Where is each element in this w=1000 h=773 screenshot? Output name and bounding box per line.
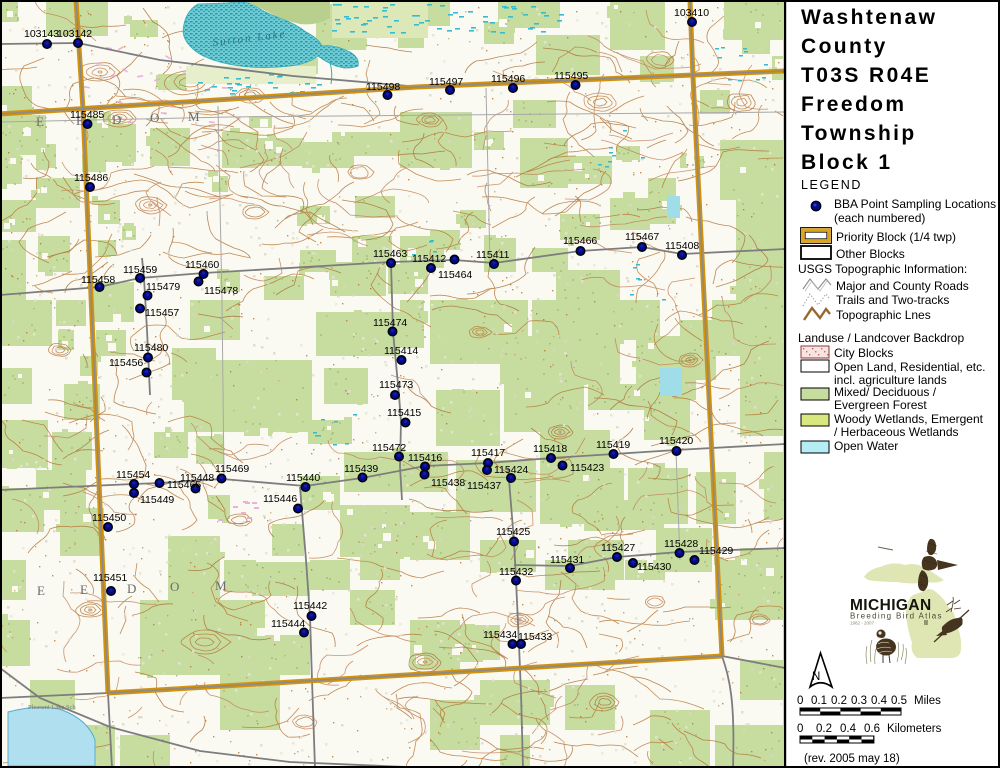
svg-text:115465: 115465 [167, 479, 201, 491]
svg-text:115456: 115456 [109, 357, 143, 369]
svg-text:115466: 115466 [563, 235, 597, 247]
svg-text:115419: 115419 [596, 439, 630, 451]
svg-text:103142: 103142 [57, 28, 92, 40]
svg-text:115423: 115423 [570, 462, 604, 474]
svg-text:BBA Point Sampling Locations: BBA Point Sampling Locations [834, 197, 996, 211]
svg-text:Block 1: Block 1 [801, 151, 893, 174]
svg-text:115498: 115498 [366, 81, 400, 93]
svg-text:County: County [801, 35, 888, 58]
svg-text:Township: Township [801, 122, 917, 145]
svg-text:115425: 115425 [496, 526, 530, 538]
svg-text:115414: 115414 [384, 345, 418, 357]
svg-text:115433: 115433 [518, 631, 552, 643]
svg-text:Freedom: Freedom [801, 93, 907, 116]
svg-text:115411: 115411 [476, 249, 510, 261]
svg-text:115479: 115479 [146, 281, 180, 293]
svg-text:115473: 115473 [379, 379, 413, 391]
svg-text:Kilometers: Kilometers [887, 723, 942, 735]
svg-text:115424: 115424 [494, 464, 528, 476]
svg-text:115432: 115432 [499, 566, 533, 578]
svg-text:115437: 115437 [467, 480, 501, 492]
svg-text:D: D [112, 112, 121, 127]
svg-text:Major and County Roads: Major and County Roads [836, 279, 969, 293]
svg-text:Breeding Bird Atlas: Breeding Bird Atlas [850, 612, 943, 621]
svg-text:115438: 115438 [431, 477, 465, 489]
svg-text:103410: 103410 [674, 7, 709, 19]
svg-text:115420: 115420 [659, 435, 693, 447]
svg-text:115434: 115434 [483, 629, 517, 641]
svg-text:M: M [215, 578, 227, 593]
svg-text:O: O [150, 110, 159, 125]
svg-text:115451: 115451 [93, 572, 127, 584]
svg-text:N: N [812, 671, 820, 683]
svg-text:115454: 115454 [116, 469, 150, 481]
svg-text:Landuse / Landcover Backdrop: Landuse / Landcover Backdrop [798, 331, 964, 345]
svg-text:115472: 115472 [372, 442, 406, 454]
svg-text:115486: 115486 [74, 172, 108, 184]
svg-text:115460: 115460 [185, 259, 219, 271]
svg-text:115428: 115428 [664, 538, 698, 550]
svg-text:0.4: 0.4 [840, 723, 857, 735]
svg-text:115444: 115444 [271, 618, 305, 630]
svg-text:115463: 115463 [373, 248, 407, 260]
svg-text:0.6: 0.6 [864, 723, 880, 735]
svg-text:115450: 115450 [92, 512, 126, 524]
svg-text:0.3: 0.3 [851, 695, 867, 707]
svg-text:USGS Topographic Information:: USGS Topographic Information: [798, 262, 967, 276]
svg-text:0: 0 [797, 723, 803, 735]
svg-text:115464: 115464 [438, 269, 472, 281]
svg-text:115431: 115431 [550, 554, 584, 566]
svg-text:115480: 115480 [134, 342, 168, 354]
svg-text:E: E [36, 114, 44, 129]
svg-text:115449: 115449 [140, 494, 174, 506]
svg-text:Open Water: Open Water [834, 439, 898, 453]
svg-text:115497: 115497 [429, 76, 463, 88]
svg-text:115446: 115446 [263, 493, 297, 505]
svg-text:E: E [37, 583, 45, 598]
svg-text:0.1: 0.1 [811, 695, 827, 707]
svg-text:115439: 115439 [344, 463, 378, 475]
svg-text:115430: 115430 [637, 561, 671, 573]
svg-text:115429: 115429 [699, 545, 733, 557]
svg-text:115427: 115427 [601, 542, 635, 554]
svg-text:0.2: 0.2 [831, 695, 847, 707]
svg-text:115416: 115416 [408, 452, 442, 464]
svg-text:0.2: 0.2 [816, 723, 832, 735]
svg-text:115459: 115459 [123, 264, 157, 276]
svg-text:0: 0 [797, 695, 803, 707]
svg-text:Evergreen Forest: Evergreen Forest [834, 398, 927, 412]
svg-text:115418: 115418 [533, 443, 567, 455]
svg-text:115457: 115457 [145, 307, 179, 319]
svg-text:115440: 115440 [286, 472, 320, 484]
svg-text:115469: 115469 [215, 463, 249, 475]
svg-text:T03S R04E: T03S R04E [801, 64, 931, 87]
svg-text:Mixed/ Deciduous /: Mixed/ Deciduous / [834, 385, 937, 399]
svg-text:115467: 115467 [625, 231, 659, 243]
svg-text:Open Land, Residential, etc.: Open Land, Residential, etc. [834, 360, 985, 374]
svg-text:115474: 115474 [373, 317, 407, 329]
svg-text:103143: 103143 [24, 28, 59, 40]
svg-text:E: E [80, 582, 88, 597]
svg-text:Woody Wetlands, Emergent: Woody Wetlands, Emergent [834, 412, 984, 426]
svg-text:II: II [924, 620, 928, 627]
svg-text:1982 - 2007: 1982 - 2007 [850, 621, 875, 626]
svg-text:115485: 115485 [70, 109, 104, 121]
svg-text:Pleasant Lake Sch: Pleasant Lake Sch [28, 704, 76, 711]
svg-text:City Blocks: City Blocks [834, 346, 893, 360]
svg-text:Miles: Miles [914, 695, 941, 707]
svg-text:LEGEND: LEGEND [801, 178, 862, 192]
svg-text:D: D [127, 581, 136, 596]
svg-text:115496: 115496 [491, 73, 525, 85]
svg-text:Priority Block (1/4 twp): Priority Block (1/4 twp) [836, 230, 956, 244]
svg-text:115495: 115495 [554, 70, 588, 82]
svg-text:115415: 115415 [387, 407, 421, 419]
svg-text:0.4: 0.4 [871, 695, 888, 707]
svg-text:Other Blocks: Other Blocks [836, 247, 905, 261]
svg-text:115442: 115442 [293, 600, 327, 612]
svg-text:Topographic Lnes: Topographic Lnes [836, 308, 931, 322]
svg-text:Trails and Two-tracks: Trails and Two-tracks [836, 293, 949, 307]
svg-text:115478: 115478 [204, 285, 238, 297]
svg-text:M: M [188, 109, 200, 124]
svg-text:115408: 115408 [665, 240, 699, 252]
svg-text:(each numbered): (each numbered) [834, 211, 925, 225]
svg-text:/ Herbaceous Wetlands: / Herbaceous Wetlands [834, 425, 959, 439]
svg-text:115412: 115412 [412, 253, 446, 265]
svg-text:0.5: 0.5 [891, 695, 907, 707]
svg-text:115417: 115417 [471, 447, 505, 459]
svg-text:Washtenaw: Washtenaw [801, 6, 937, 29]
svg-text:O: O [170, 579, 179, 594]
svg-text:(rev. 2005 may 18): (rev. 2005 may 18) [804, 753, 900, 765]
svg-text:115458: 115458 [81, 274, 115, 286]
